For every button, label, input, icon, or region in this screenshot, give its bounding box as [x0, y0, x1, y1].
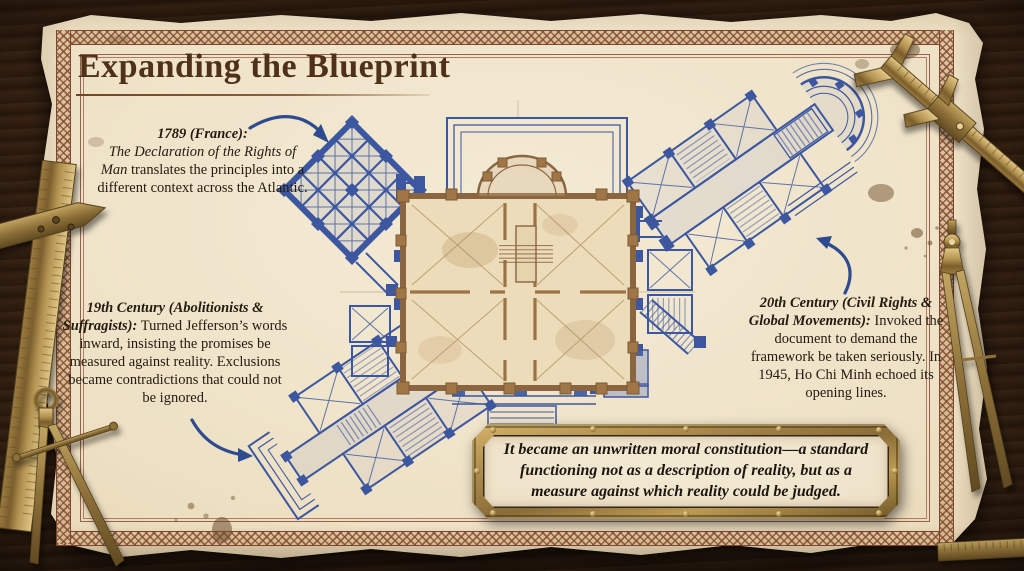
annotation-1789-france: 1789 (France): The Declaration of the Ri…	[95, 126, 310, 198]
title-underline	[76, 94, 430, 96]
slide-title: Expanding the Blueprint	[78, 50, 450, 84]
ornamental-border-right	[939, 30, 954, 544]
annotation-19th-century: 19th Century (Abolitionists & Suffragist…	[62, 300, 288, 408]
quote-text: It became an unwritten moral constitutio…	[483, 436, 889, 506]
slide-canvas: Expanding the Blueprint 1789 (France): T…	[0, 0, 1024, 571]
ornamental-border-top	[56, 30, 952, 45]
plaque-panel: It became an unwritten moral constitutio…	[483, 435, 889, 508]
ornamental-border-bottom	[56, 531, 952, 546]
annotation-lead: 1789 (France):	[95, 126, 310, 144]
annotation-body: translates the principles into a differe…	[97, 162, 307, 196]
quote-plaque: It became an unwritten moral constitutio…	[472, 424, 900, 519]
annotation-20th-century: 20th Century (Civil Rights & Global Move…	[748, 295, 944, 403]
ornamental-border-left	[56, 30, 71, 544]
